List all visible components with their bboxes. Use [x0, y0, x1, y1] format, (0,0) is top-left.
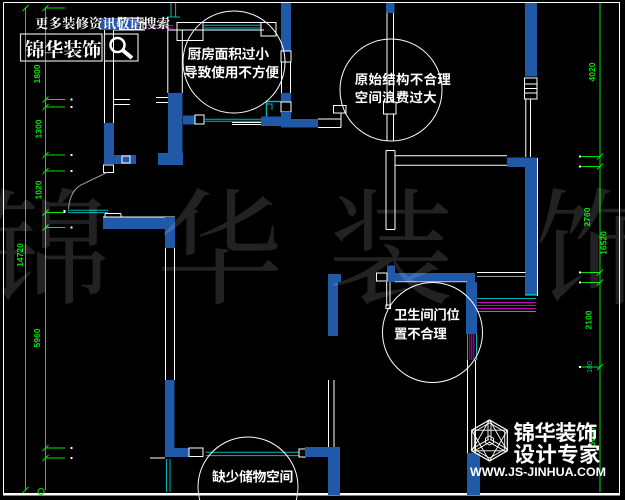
svg-text:16520: 16520: [599, 231, 609, 255]
svg-text:2100: 2100: [584, 310, 594, 329]
svg-text:5960: 5960: [32, 328, 42, 347]
svg-text:1020: 1020: [34, 180, 44, 199]
svg-text:WWW.JS-JINHUA.COM: WWW.JS-JINHUA.COM: [470, 465, 606, 479]
svg-text:14720: 14720: [15, 243, 25, 267]
svg-text:180: 180: [587, 361, 594, 373]
svg-text:1800: 1800: [32, 64, 42, 83]
svg-text:1300: 1300: [34, 119, 44, 138]
svg-text:4020: 4020: [587, 62, 597, 81]
